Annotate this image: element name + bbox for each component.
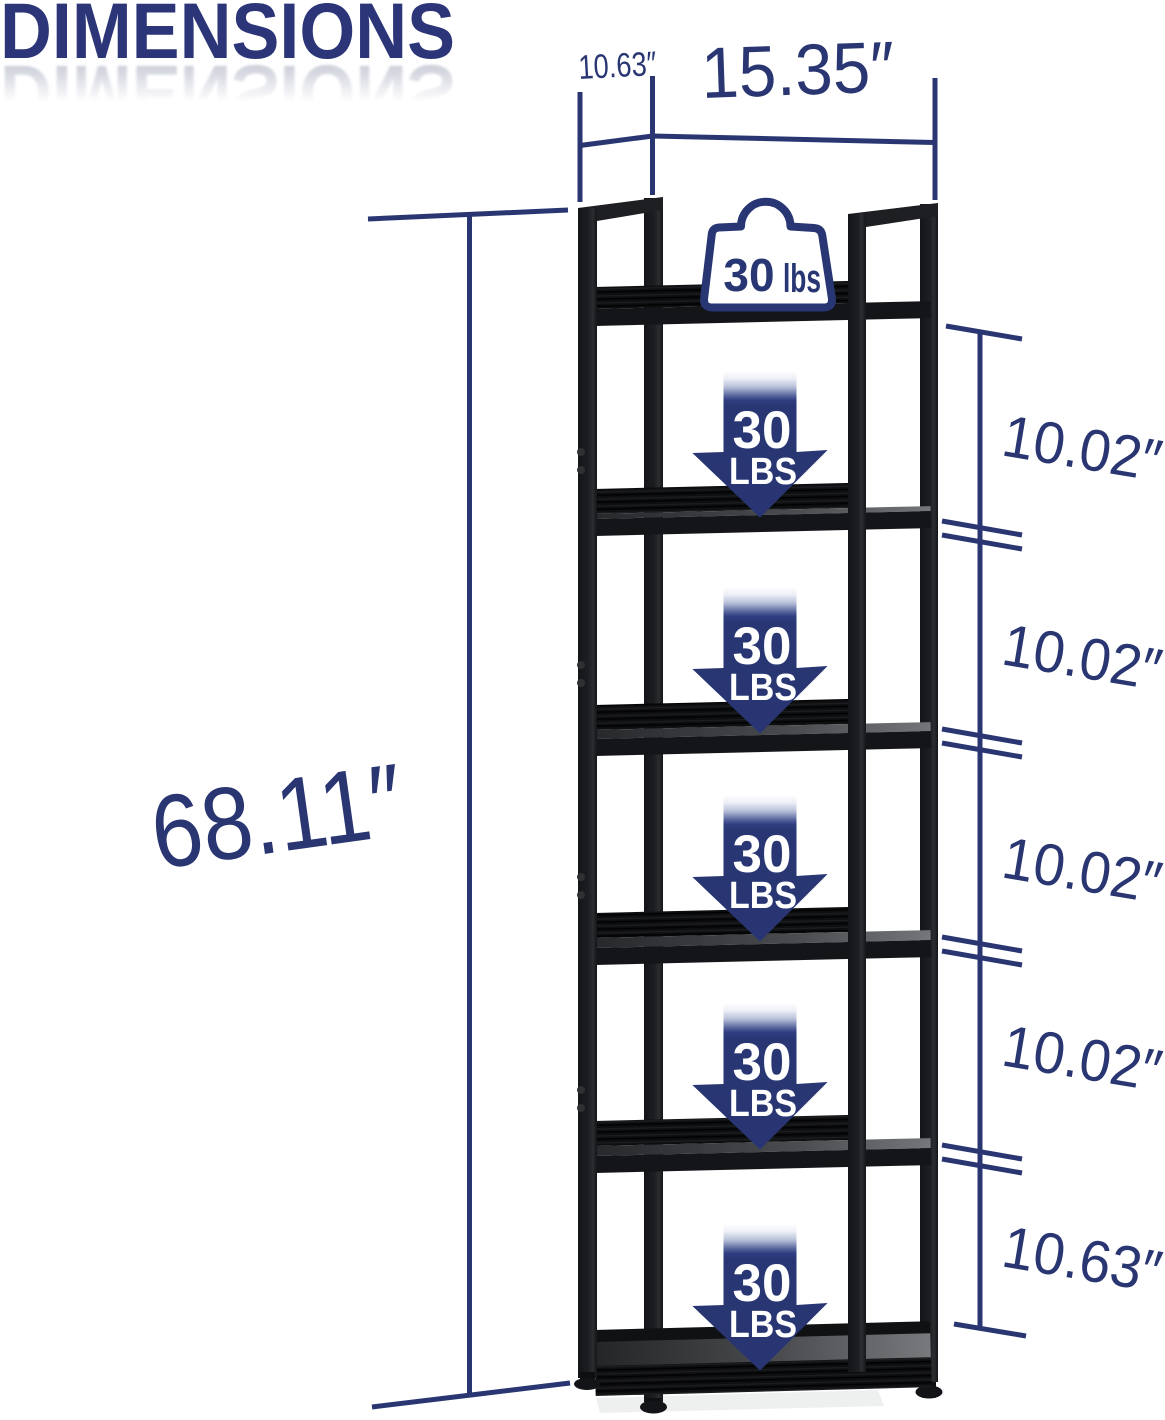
svg-text:10.63″: 10.63″	[577, 45, 657, 87]
svg-text:LBS: LBS	[729, 1083, 797, 1125]
svg-text:LBS: LBS	[729, 451, 797, 493]
svg-text:10.02″: 10.02″	[998, 612, 1165, 704]
svg-text:10.63″: 10.63″	[998, 1214, 1165, 1306]
svg-text:30: 30	[723, 249, 774, 301]
svg-text:LBS: LBS	[729, 667, 797, 709]
svg-text:LBS: LBS	[729, 875, 797, 917]
svg-text:10.02″: 10.02″	[998, 1013, 1165, 1105]
svg-text:DIMENSIONS: DIMENSIONS	[0, 49, 455, 138]
svg-text:lbs: lbs	[783, 257, 821, 301]
svg-text:LBS: LBS	[729, 1304, 797, 1346]
svg-text:15.35″: 15.35″	[700, 27, 896, 114]
svg-text:10.02″: 10.02″	[998, 825, 1165, 917]
svg-text:10.02″: 10.02″	[998, 403, 1165, 495]
svg-text:68.11″: 68.11″	[144, 742, 410, 891]
